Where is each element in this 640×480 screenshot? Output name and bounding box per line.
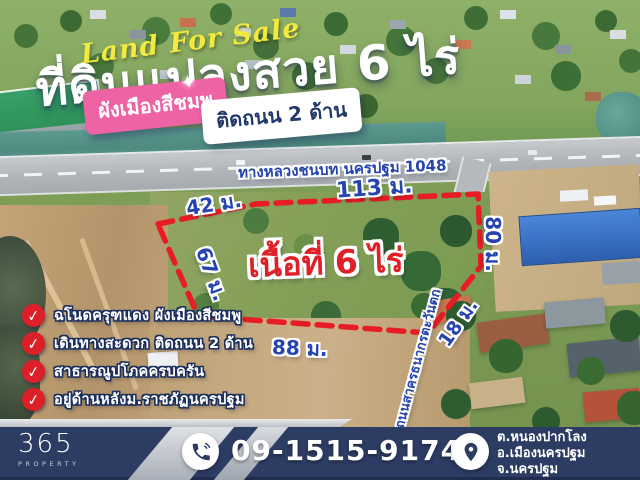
feature-text: เดินทางสะดวก ติดถนน 2 ด้าน	[54, 332, 253, 355]
address-line: จ.นครปฐม	[497, 462, 587, 478]
brand-name: PROPERTY	[18, 460, 80, 468]
check-icon: ✓	[21, 387, 47, 413]
address-line: ต.หนองปากโลง	[497, 430, 587, 446]
phone-icon	[182, 433, 219, 470]
truck	[594, 195, 616, 205]
feature-text: ฉโนดครุฑแดง ผังเมืองสีชมพู	[54, 304, 241, 327]
phone-number: 09-1515-9174	[231, 434, 461, 467]
plot-area-label: เนื้อที่ 6 ไร่	[247, 233, 404, 291]
bottom-right-trees	[0, 0, 12, 12]
house-roof	[476, 313, 549, 352]
check-icon: ✓	[21, 359, 47, 385]
house-roof	[469, 377, 526, 409]
measurement-top-right: 113 ม.	[335, 167, 414, 207]
house-roof	[566, 336, 640, 377]
gray-shed	[601, 261, 640, 286]
measurement-right: 80 ม.	[477, 216, 509, 272]
brand-number: 365	[18, 431, 80, 457]
feature-text: สาธารณูปโภคครบครัน	[54, 360, 204, 383]
feature-row: ✓ อยู่ด้านหลังม.ราชภัฏนครปฐม	[22, 388, 245, 411]
check-icon: ✓	[21, 303, 47, 329]
address-block: ต.หนองปากโลง อ.เมืองนครปฐม จ.นครปฐม	[497, 430, 587, 478]
feature-row: ✓ เดินทางสะดวก ติดถนน 2 ด้าน	[22, 332, 253, 355]
address-line: อ.เมืองนครปฐม	[497, 446, 587, 462]
house-roof	[544, 297, 606, 328]
blue-roof-warehouse	[518, 208, 640, 266]
truck	[560, 189, 589, 201]
feature-text: อยู่ด้านหลังม.ราชภัฏนครปฐม	[54, 388, 245, 411]
land-for-sale-ad: ทางหลวงชนบท นครปฐม 1048 ถนนสาครธนากรตะวั…	[0, 0, 640, 480]
measurement-bottom: 88 ม.	[271, 331, 328, 365]
sparkle-icon: ✦	[178, 69, 199, 96]
house-roof	[583, 388, 640, 423]
feature-row: ✓ สาธารณูปโภคครบครัน	[22, 360, 204, 383]
check-icon: ✓	[21, 331, 47, 357]
feature-row: ✓ ฉโนดครุฑแดง ผังเมืองสีชมพู	[22, 304, 241, 327]
brand-logo: 365 PROPERTY	[18, 431, 80, 468]
location-pin-icon	[452, 433, 489, 470]
